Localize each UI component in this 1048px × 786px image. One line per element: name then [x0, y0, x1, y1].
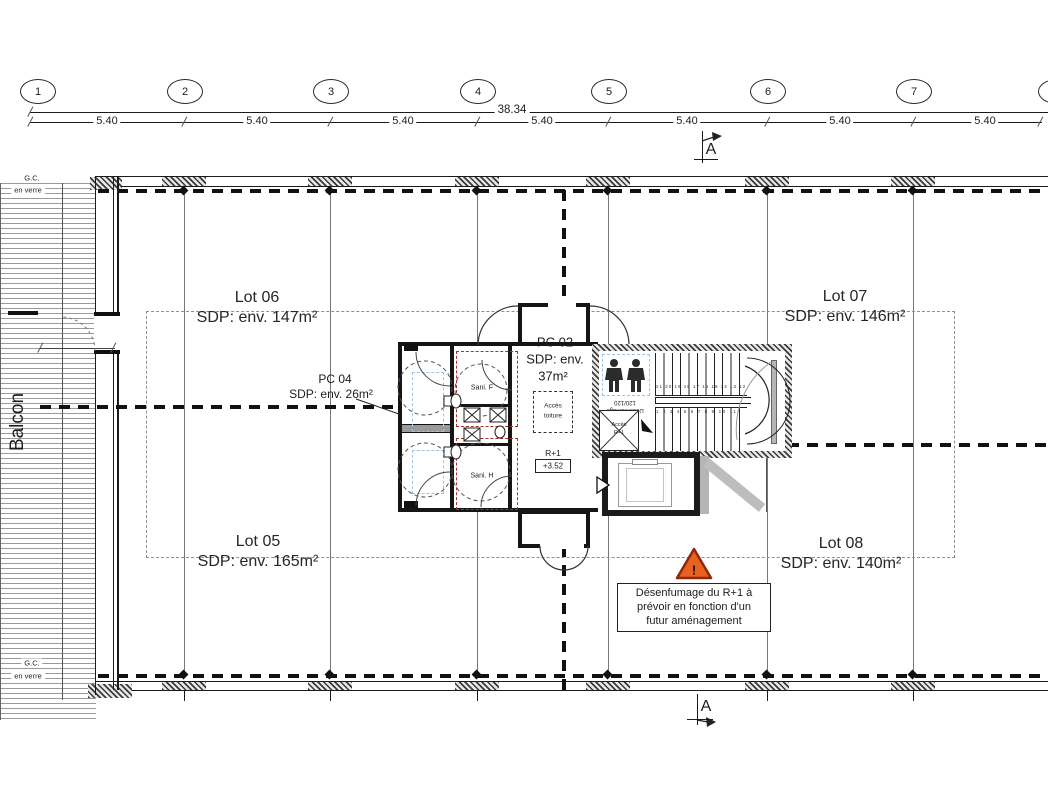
lot06-name: Lot 06	[235, 289, 279, 307]
lot06-area: SDP: env. 147m²	[197, 309, 318, 327]
turning-circle-1	[398, 361, 452, 415]
toilet-3	[495, 426, 505, 438]
section-line-bottom-v	[697, 694, 698, 725]
pc02-name: PC 02	[537, 335, 573, 350]
toilet-2	[444, 445, 461, 459]
warning-line3: futur aménagement	[646, 615, 741, 627]
sink-3	[464, 428, 480, 441]
elevator-entry-arrow	[597, 477, 609, 493]
lot08-name: Lot 08	[819, 535, 863, 553]
vestibule-door-swing-left	[478, 306, 518, 345]
pc04-leader-line	[356, 399, 399, 414]
double-door-swing-right	[564, 546, 588, 570]
door-swing-sani-h	[481, 476, 512, 507]
vestibule-door-swing-right	[590, 306, 629, 344]
pc02-line2: SDP: env.	[526, 352, 584, 367]
section-arrow-line-top	[702, 137, 714, 141]
stair-turn-curve	[745, 366, 769, 434]
plan-linework	[0, 0, 1048, 786]
stair-right-door-swing	[736, 362, 771, 440]
double-door-swing-left	[540, 546, 564, 570]
floor-plan-canvas: 1 2 3 4 5 6 7 8 38.34 5.40 5.40 5.40 5.4…	[0, 0, 1048, 786]
balcony-door-swing	[61, 317, 95, 351]
door-swing-room1	[416, 352, 450, 386]
warning-exclamation: !	[692, 563, 696, 578]
person-icon-1	[605, 359, 623, 392]
lot08-area: SDP: env. 140m²	[781, 555, 902, 573]
section-marker-a-bottom: A	[701, 698, 712, 716]
lot05-area: SDP: env. 165m²	[198, 553, 319, 571]
pc04-area: SDP: env. 26m²	[289, 387, 373, 401]
lot07-name: Lot 07	[823, 288, 867, 306]
sink-2	[490, 408, 506, 422]
sink-1	[464, 408, 480, 422]
toilet-1	[444, 394, 461, 408]
lobby-gray-shading	[706, 462, 762, 508]
stair-door-x	[599, 410, 639, 451]
person-icon-2	[627, 359, 645, 392]
lot05-name: Lot 05	[236, 533, 280, 551]
pc02-line3: 37m²	[538, 369, 568, 384]
warning-line2: prévoir en fonction d'un	[637, 601, 751, 613]
warning-line1: Désenfumage du R+1 à	[636, 587, 753, 599]
door-swing-room2	[416, 472, 450, 506]
stair-door-marker	[641, 419, 653, 433]
section-arrow-top	[712, 132, 722, 141]
pc04-name: PC 04	[318, 372, 351, 386]
lot07-area: SDP: env. 146m²	[785, 308, 906, 326]
section-line-bottom-h	[687, 719, 713, 720]
